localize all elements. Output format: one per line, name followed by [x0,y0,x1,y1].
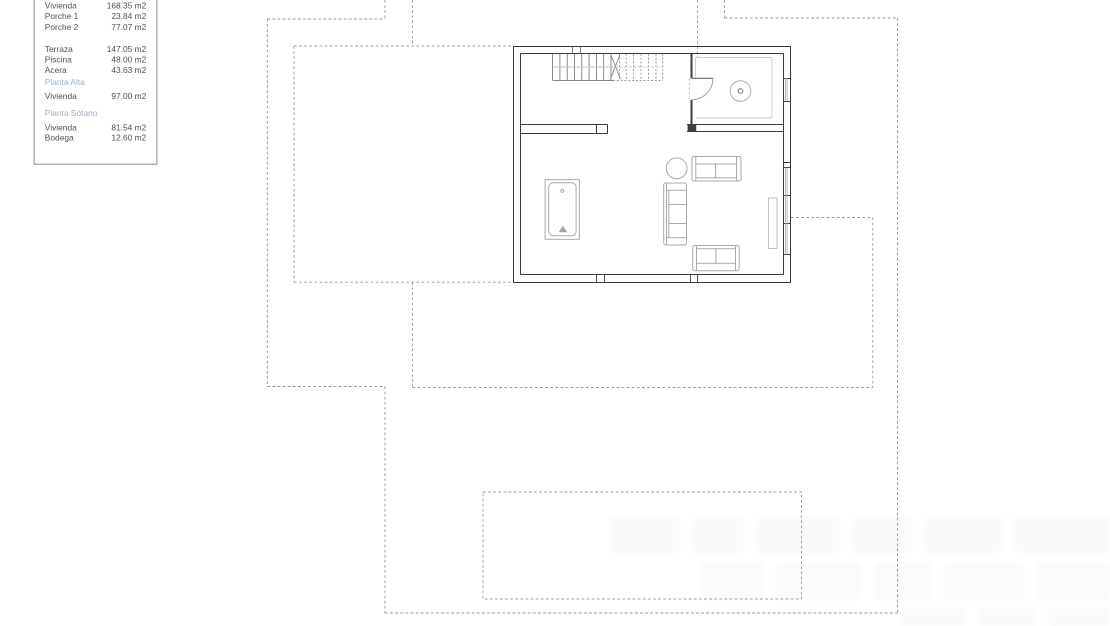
svg-text:97.00 m2: 97.00 m2 [111,91,146,101]
svg-text:81.54 m2: 81.54 m2 [111,123,146,133]
svg-text:Planta Sótano: Planta Sótano [45,108,98,118]
svg-text:Porche 2: Porche 2 [45,22,79,32]
svg-text:Vivienda: Vivienda [45,123,77,133]
svg-text:Acera: Acera [45,65,67,75]
svg-text:Vivienda: Vivienda [45,91,77,101]
svg-text:Terraza: Terraza [45,44,73,54]
svg-text:77.07 m2: 77.07 m2 [111,22,146,32]
svg-text:Bodega: Bodega [45,133,74,143]
svg-text:Porche 1: Porche 1 [45,11,79,21]
svg-text:147.05 m2: 147.05 m2 [107,44,147,54]
svg-text:48.00 m2: 48.00 m2 [111,54,146,64]
svg-text:12.60 m2: 12.60 m2 [111,133,146,143]
svg-text:168.35 m2: 168.35 m2 [107,0,147,10]
svg-text:Piscina: Piscina [45,54,72,64]
svg-text:23.84 m2: 23.84 m2 [111,11,146,21]
svg-text:43.63 m2: 43.63 m2 [111,65,146,75]
svg-text:Planta Alta: Planta Alta [45,77,85,87]
svg-text:Vivienda: Vivienda [45,0,77,10]
